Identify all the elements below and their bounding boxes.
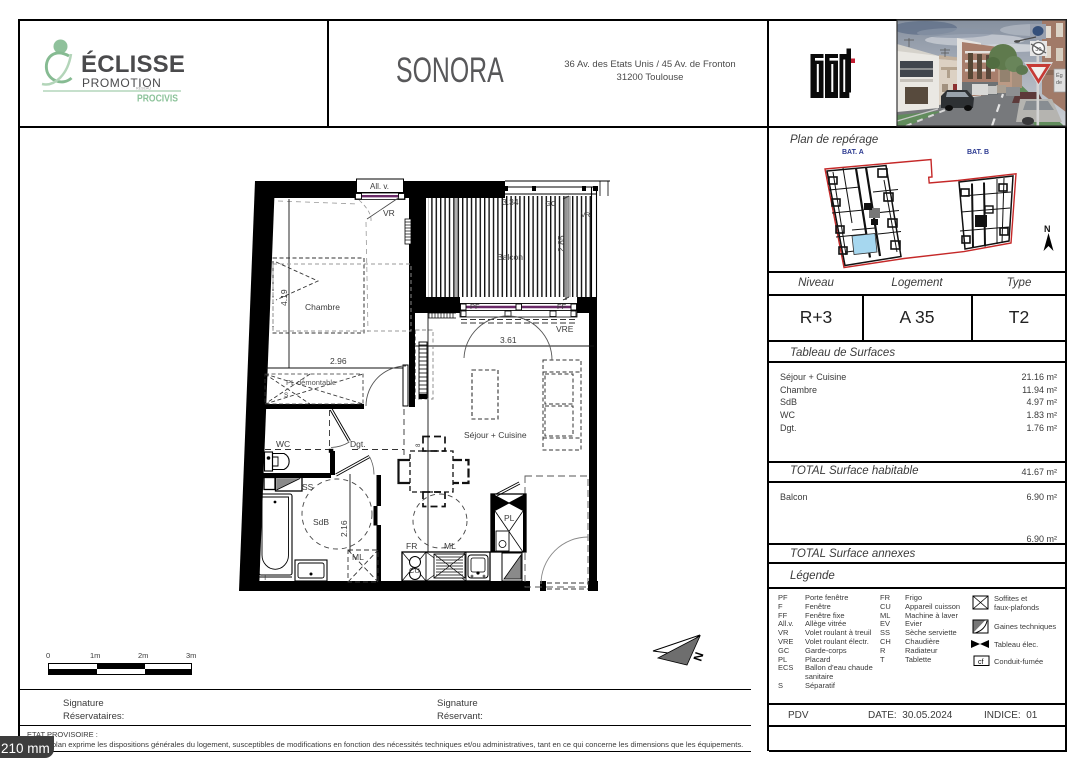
svg-text:FF: FF	[557, 302, 567, 311]
svg-text:CU: CU	[409, 566, 420, 575]
svg-text:Séjour + Cuisine: Séjour + Cuisine	[464, 430, 527, 440]
svg-text:WC: WC	[276, 439, 290, 449]
svg-text:T: T	[263, 575, 268, 582]
svg-text:ML: ML	[352, 552, 364, 562]
svg-text:ML: ML	[444, 541, 456, 551]
svg-text:8: 8	[416, 443, 422, 447]
svg-text:PL démontable: PL démontable	[286, 378, 336, 387]
svg-text:PL: PL	[504, 513, 515, 523]
svg-text:Ég: Ég	[1056, 72, 1063, 79]
svg-text:ÉCLISSE: ÉCLISSE	[81, 50, 185, 78]
svg-text:RÉSEAU: RÉSEAU	[136, 86, 151, 91]
svg-text:S: S	[284, 392, 289, 399]
svg-text:3.34: 3.34	[502, 197, 519, 207]
svg-text:SS: SS	[302, 482, 314, 492]
svg-text:2.16: 2.16	[339, 520, 349, 537]
svg-text:FR: FR	[406, 541, 417, 551]
svg-text:2.96: 2.96	[330, 356, 347, 366]
svg-text:PF: PF	[470, 302, 480, 311]
svg-text:Balcon: Balcon	[497, 252, 523, 262]
svg-text:Chambre: Chambre	[305, 302, 340, 312]
svg-text:VR: VR	[383, 208, 395, 218]
svg-text:VRE: VRE	[556, 324, 574, 334]
svg-text:N: N	[691, 650, 707, 663]
svg-text:Dgt.: Dgt.	[350, 439, 366, 449]
svg-text:GC: GC	[545, 199, 557, 208]
svg-text:cf: cf	[978, 659, 984, 666]
svg-text:de: de	[1056, 80, 1062, 86]
svg-text:SdB: SdB	[313, 517, 329, 527]
svg-text:PROCIVIS: PROCIVIS	[137, 93, 178, 105]
svg-text:2.85: 2.85	[556, 235, 566, 252]
svg-text:VR: VR	[581, 212, 590, 219]
svg-text:4.19: 4.19	[279, 289, 289, 306]
svg-text:All. v.: All. v.	[370, 182, 389, 191]
svg-text:3.61: 3.61	[500, 335, 517, 345]
svg-text:N: N	[1044, 224, 1051, 234]
